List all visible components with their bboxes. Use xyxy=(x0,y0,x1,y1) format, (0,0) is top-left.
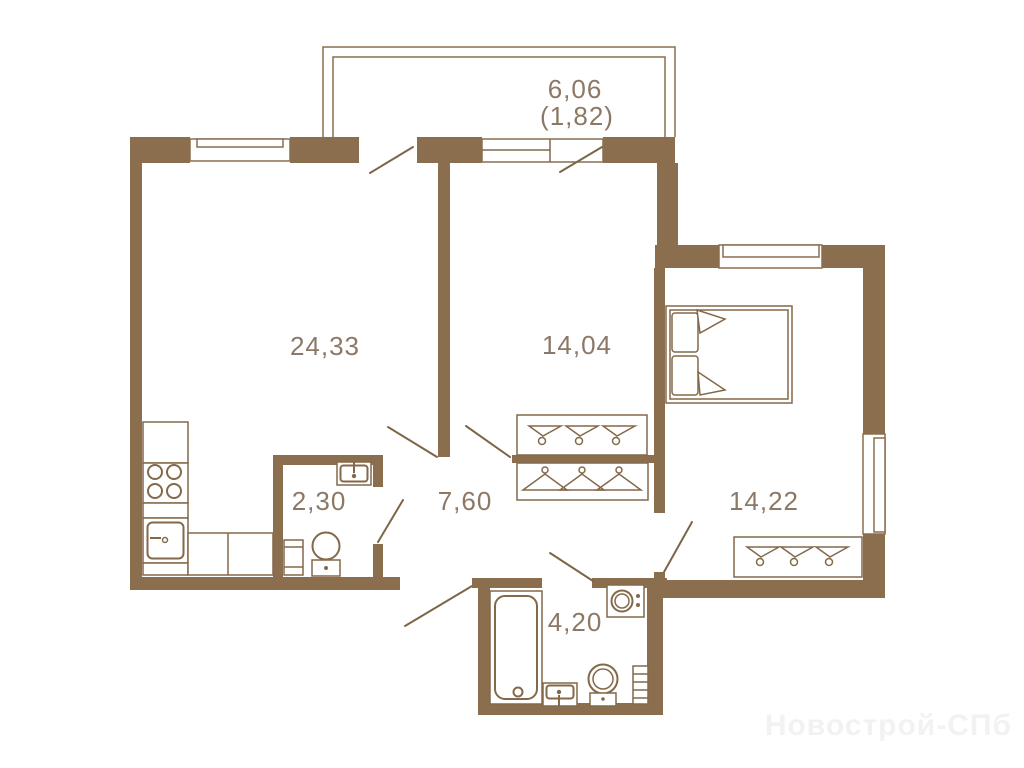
wall-mid xyxy=(438,163,450,457)
bathroom-toilet-symbol xyxy=(589,665,618,707)
bedroom-wardrobe xyxy=(734,537,862,577)
balcony-door-swing xyxy=(370,147,413,173)
window-bedroom-right xyxy=(863,434,885,534)
window-living xyxy=(190,139,290,161)
floorplan-canvas: 6,06 (1,82) 24,33 14,04 14,22 7,60 2,30 … xyxy=(0,0,1024,768)
wall-bedroom-bottom xyxy=(654,580,885,598)
wall-top-b xyxy=(290,137,359,163)
bedroom-area-label: 14,22 xyxy=(729,486,799,516)
hallway-wardrobe xyxy=(517,463,648,500)
bathroom-sink-symbol xyxy=(543,683,577,706)
wc-fixtures xyxy=(284,462,371,576)
wall-top-c xyxy=(417,137,482,163)
window-room-combo xyxy=(482,139,603,162)
watermark: Новострой-СПб xyxy=(765,709,1012,742)
room-door-swing xyxy=(466,426,510,457)
wall-bath-right xyxy=(647,588,663,703)
balcony-reduced-area-label: (1,82) xyxy=(540,101,614,131)
living-door-swing xyxy=(388,427,437,457)
wall-wc-right-bottom xyxy=(373,544,383,577)
wc-door-swing xyxy=(378,500,403,542)
kitchen-counter-end xyxy=(143,563,188,575)
countertop xyxy=(188,533,273,575)
kitchen-cabinet xyxy=(143,422,188,463)
wall-wc-right-top xyxy=(373,465,383,487)
washing-machine-symbol xyxy=(607,585,644,617)
wall-bedroom-right xyxy=(863,245,885,588)
kitchen-living-area-label: 24,33 xyxy=(290,331,360,361)
pillow xyxy=(672,313,698,352)
room-wardrobe xyxy=(517,415,647,455)
window-bedroom-top xyxy=(719,245,822,268)
towel-radiator-symbol xyxy=(633,666,648,704)
toilet-symbol xyxy=(312,533,340,577)
bathroom-area-label: 4,20 xyxy=(548,607,603,637)
kitchen-sink-symbol xyxy=(143,518,188,563)
wc-cabinet-symbol xyxy=(284,540,303,575)
hallway-area-label: 7,60 xyxy=(438,486,493,516)
bathroom-door-swing xyxy=(550,553,593,581)
wall-top-d xyxy=(603,137,675,163)
wall-wc-left xyxy=(273,455,283,577)
balcony-area-label: 6,06 xyxy=(548,74,603,104)
wall-bath-left xyxy=(478,582,490,715)
wall-bottom-left xyxy=(130,577,400,590)
balcony-outline xyxy=(323,47,675,137)
bathroom-fixtures xyxy=(490,585,648,706)
door-swings xyxy=(370,147,692,626)
bed-symbol xyxy=(666,306,792,403)
wc-sink-symbol xyxy=(337,462,371,485)
wall-left xyxy=(130,137,142,590)
wall-room-bottom xyxy=(512,455,665,463)
bathtub-symbol xyxy=(490,591,542,704)
pillow xyxy=(672,356,698,395)
stove-symbol xyxy=(143,463,188,503)
kitchen-shelf xyxy=(143,503,188,518)
kitchen-block xyxy=(143,422,273,575)
room-area-label: 14,04 xyxy=(542,330,612,360)
wall-bedroom-left xyxy=(654,268,665,513)
entrance-door-swing xyxy=(405,586,472,626)
wc-area-label: 2,30 xyxy=(292,486,347,516)
bedroom-door-swing xyxy=(664,522,692,572)
floorplan-drawing: 6,06 (1,82) 24,33 14,04 14,22 7,60 2,30 … xyxy=(0,0,1024,768)
